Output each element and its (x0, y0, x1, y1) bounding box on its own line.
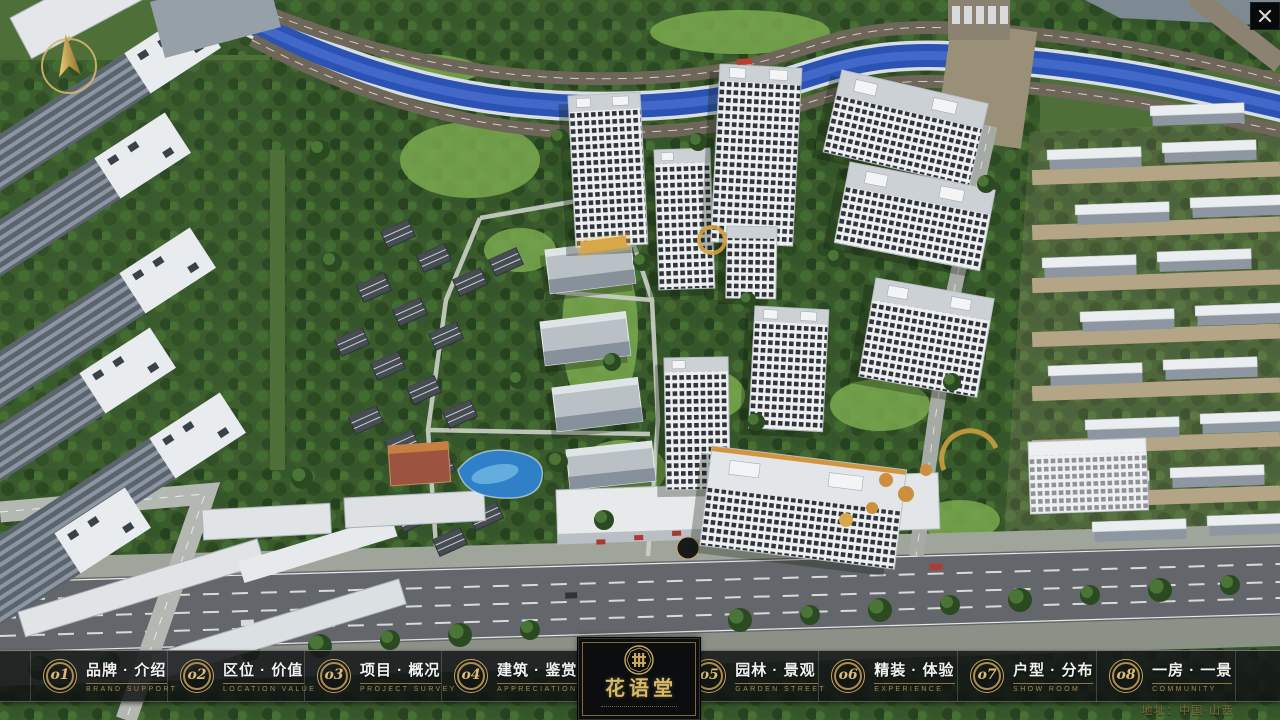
project-name: 花语堂 (601, 678, 677, 698)
nav-group-right: o5 园林 · 景观 GARDEN STREET o6 精装 · 体验 EXPE… (679, 651, 1280, 701)
nav-end-separator (1235, 651, 1236, 701)
nav-label-en: EXPERIENCE (874, 686, 954, 693)
nav-number-badge: o8 (1109, 659, 1143, 693)
aerial-masterplan-render (0, 0, 1280, 720)
nav-item-location[interactable]: o2 区位 · 价值 LOCATION VALUE (167, 651, 304, 701)
project-seal-icon (623, 644, 655, 676)
nav-label-zh: 一房 · 一景 (1152, 659, 1232, 684)
nav-label-en: PROJECT SURVEY (360, 686, 441, 693)
nav-item-brand[interactable]: o1 品牌 · 介绍 BRAND SUPPORT (30, 651, 167, 701)
nav-label-zh: 建筑 · 鉴赏 (497, 659, 577, 684)
project-logo-plaque[interactable]: 花语堂 (578, 638, 700, 720)
nav-number-badge: o7 (970, 659, 1004, 693)
nav-item-project[interactable]: o3 项目 · 概况 PROJECT SURVEY (304, 651, 441, 701)
nav-number-badge: o4 (454, 659, 488, 693)
nav-number-badge: o3 (317, 659, 351, 693)
nav-label-en: APPRECIATION (497, 686, 577, 693)
map-viewport[interactable] (0, 0, 1280, 720)
nav-label-zh: 园林 · 景观 (735, 659, 818, 684)
logo-tagline-rule (601, 701, 677, 707)
nav-label-zh: 精装 · 体验 (874, 659, 954, 684)
nav-label-en: LOCATION VALUE (223, 686, 304, 693)
nav-number-badge: o1 (43, 659, 77, 693)
nav-label-en: GARDEN STREET (735, 686, 818, 693)
nav-label-en: COMMUNITY (1152, 686, 1232, 693)
nav-number-badge: o2 (180, 659, 214, 693)
nav-label-en: SHOW ROOM (1013, 686, 1093, 693)
nav-item-garden[interactable]: o5 园林 · 景观 GARDEN STREET (679, 651, 818, 701)
nav-label-zh: 项目 · 概况 (360, 659, 441, 684)
nav-number-badge: o6 (831, 659, 865, 693)
nav-label-zh: 户型 · 分布 (1013, 659, 1093, 684)
nav-item-views[interactable]: o8 一房 · 一景 COMMUNITY (1096, 651, 1235, 701)
compass-icon (34, 28, 104, 102)
nav-item-interior[interactable]: o6 精装 · 体验 EXPERIENCE (818, 651, 957, 701)
nav-group-left: o1 品牌 · 介绍 BRAND SUPPORT o2 区位 · 价值 LOCA… (0, 651, 578, 701)
presentation-window: o1 品牌 · 介绍 BRAND SUPPORT o2 区位 · 价值 LOCA… (0, 0, 1280, 720)
nav-item-architecture[interactable]: o4 建筑 · 鉴赏 APPRECIATION (441, 651, 578, 701)
nav-label-zh: 区位 · 价值 (223, 659, 304, 684)
nav-label-en: BRAND SUPPORT (86, 686, 167, 693)
close-button[interactable] (1250, 2, 1280, 30)
nav-label-zh: 品牌 · 介绍 (86, 659, 167, 684)
close-icon (1258, 9, 1272, 23)
nav-item-floorplans[interactable]: o7 户型 · 分布 SHOW ROOM (957, 651, 1096, 701)
project-address: 地址：中国·山西 (1141, 702, 1234, 718)
